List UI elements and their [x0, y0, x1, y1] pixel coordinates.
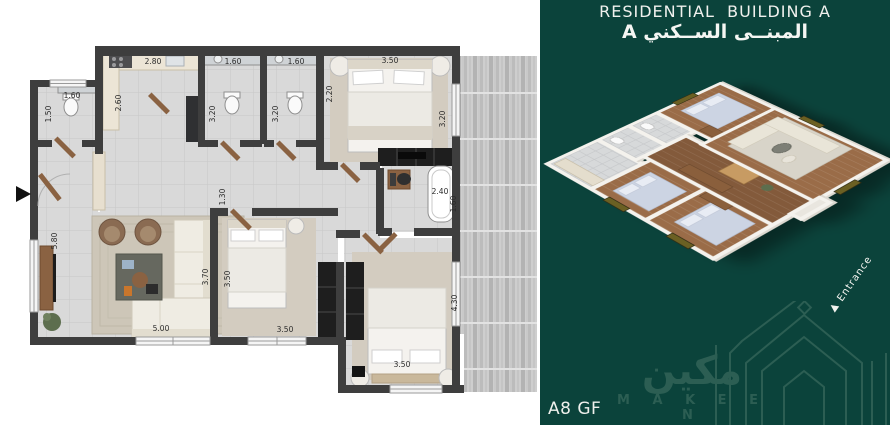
floor-plan-3d [552, 48, 882, 338]
wardrobe-icon [318, 262, 336, 338]
tv-icon [398, 152, 426, 159]
dimension-label: 3.20 [208, 105, 217, 122]
brand-name-arabic: مكين [602, 351, 782, 391]
hall-closet [93, 152, 105, 210]
master-bedroom-furniture [330, 56, 452, 166]
exterior-hatch-area [460, 56, 537, 392]
brand-logo: مكين M A K E E N [602, 351, 782, 423]
building-title-en: RESIDENTIAL BUILDING A [540, 2, 890, 21]
dimension-label: 1.60 [64, 91, 81, 100]
dimension-label: 3.50 [382, 56, 399, 65]
wardrobe-icon [346, 262, 364, 340]
dimension-label: 1.60 [225, 57, 242, 66]
dimension-label: 2.20 [325, 85, 334, 102]
info-panel: RESIDENTIAL BUILDING A المبنــى الســكني… [540, 0, 890, 425]
kitchen-sink-icon [166, 56, 184, 66]
dimension-label: 3.50 [394, 360, 411, 369]
unit-label: A8 GF [548, 399, 601, 419]
tv-console-icon [40, 246, 53, 310]
dimension-label: 2.40 [432, 187, 449, 196]
dimension-label: 4.30 [450, 294, 459, 311]
dimension-label: 5.80 [50, 232, 59, 249]
dimension-label: 3.50 [223, 270, 232, 287]
dimension-label: 3.50 [277, 325, 294, 334]
dimension-label: 1.50 [44, 105, 53, 122]
dimension-label: 3.20 [438, 110, 447, 127]
dimension-label: 3.70 [201, 268, 210, 285]
dimension-label: 2.80 [145, 57, 162, 66]
tv-icon [352, 366, 365, 377]
dimension-label: 1.30 [218, 188, 227, 205]
dimension-label: 3.20 [271, 105, 280, 122]
building-title-ar: المبنــى الســكني A [540, 21, 890, 43]
entrance-arrow-icon [16, 186, 31, 202]
dimension-label: 5.00 [153, 324, 170, 333]
dimension-label: 2.60 [114, 94, 123, 111]
brochure-page: 1.601.502.802.601.603.201.603.203.502.20… [0, 0, 890, 425]
dimension-label: 1.60 [288, 57, 305, 66]
dimension-label: 1.60 [449, 195, 458, 212]
floor-plan-2d: 1.601.502.802.601.603.201.603.203.502.20… [0, 0, 540, 425]
brand-name-english: M A K E E N [602, 393, 782, 423]
